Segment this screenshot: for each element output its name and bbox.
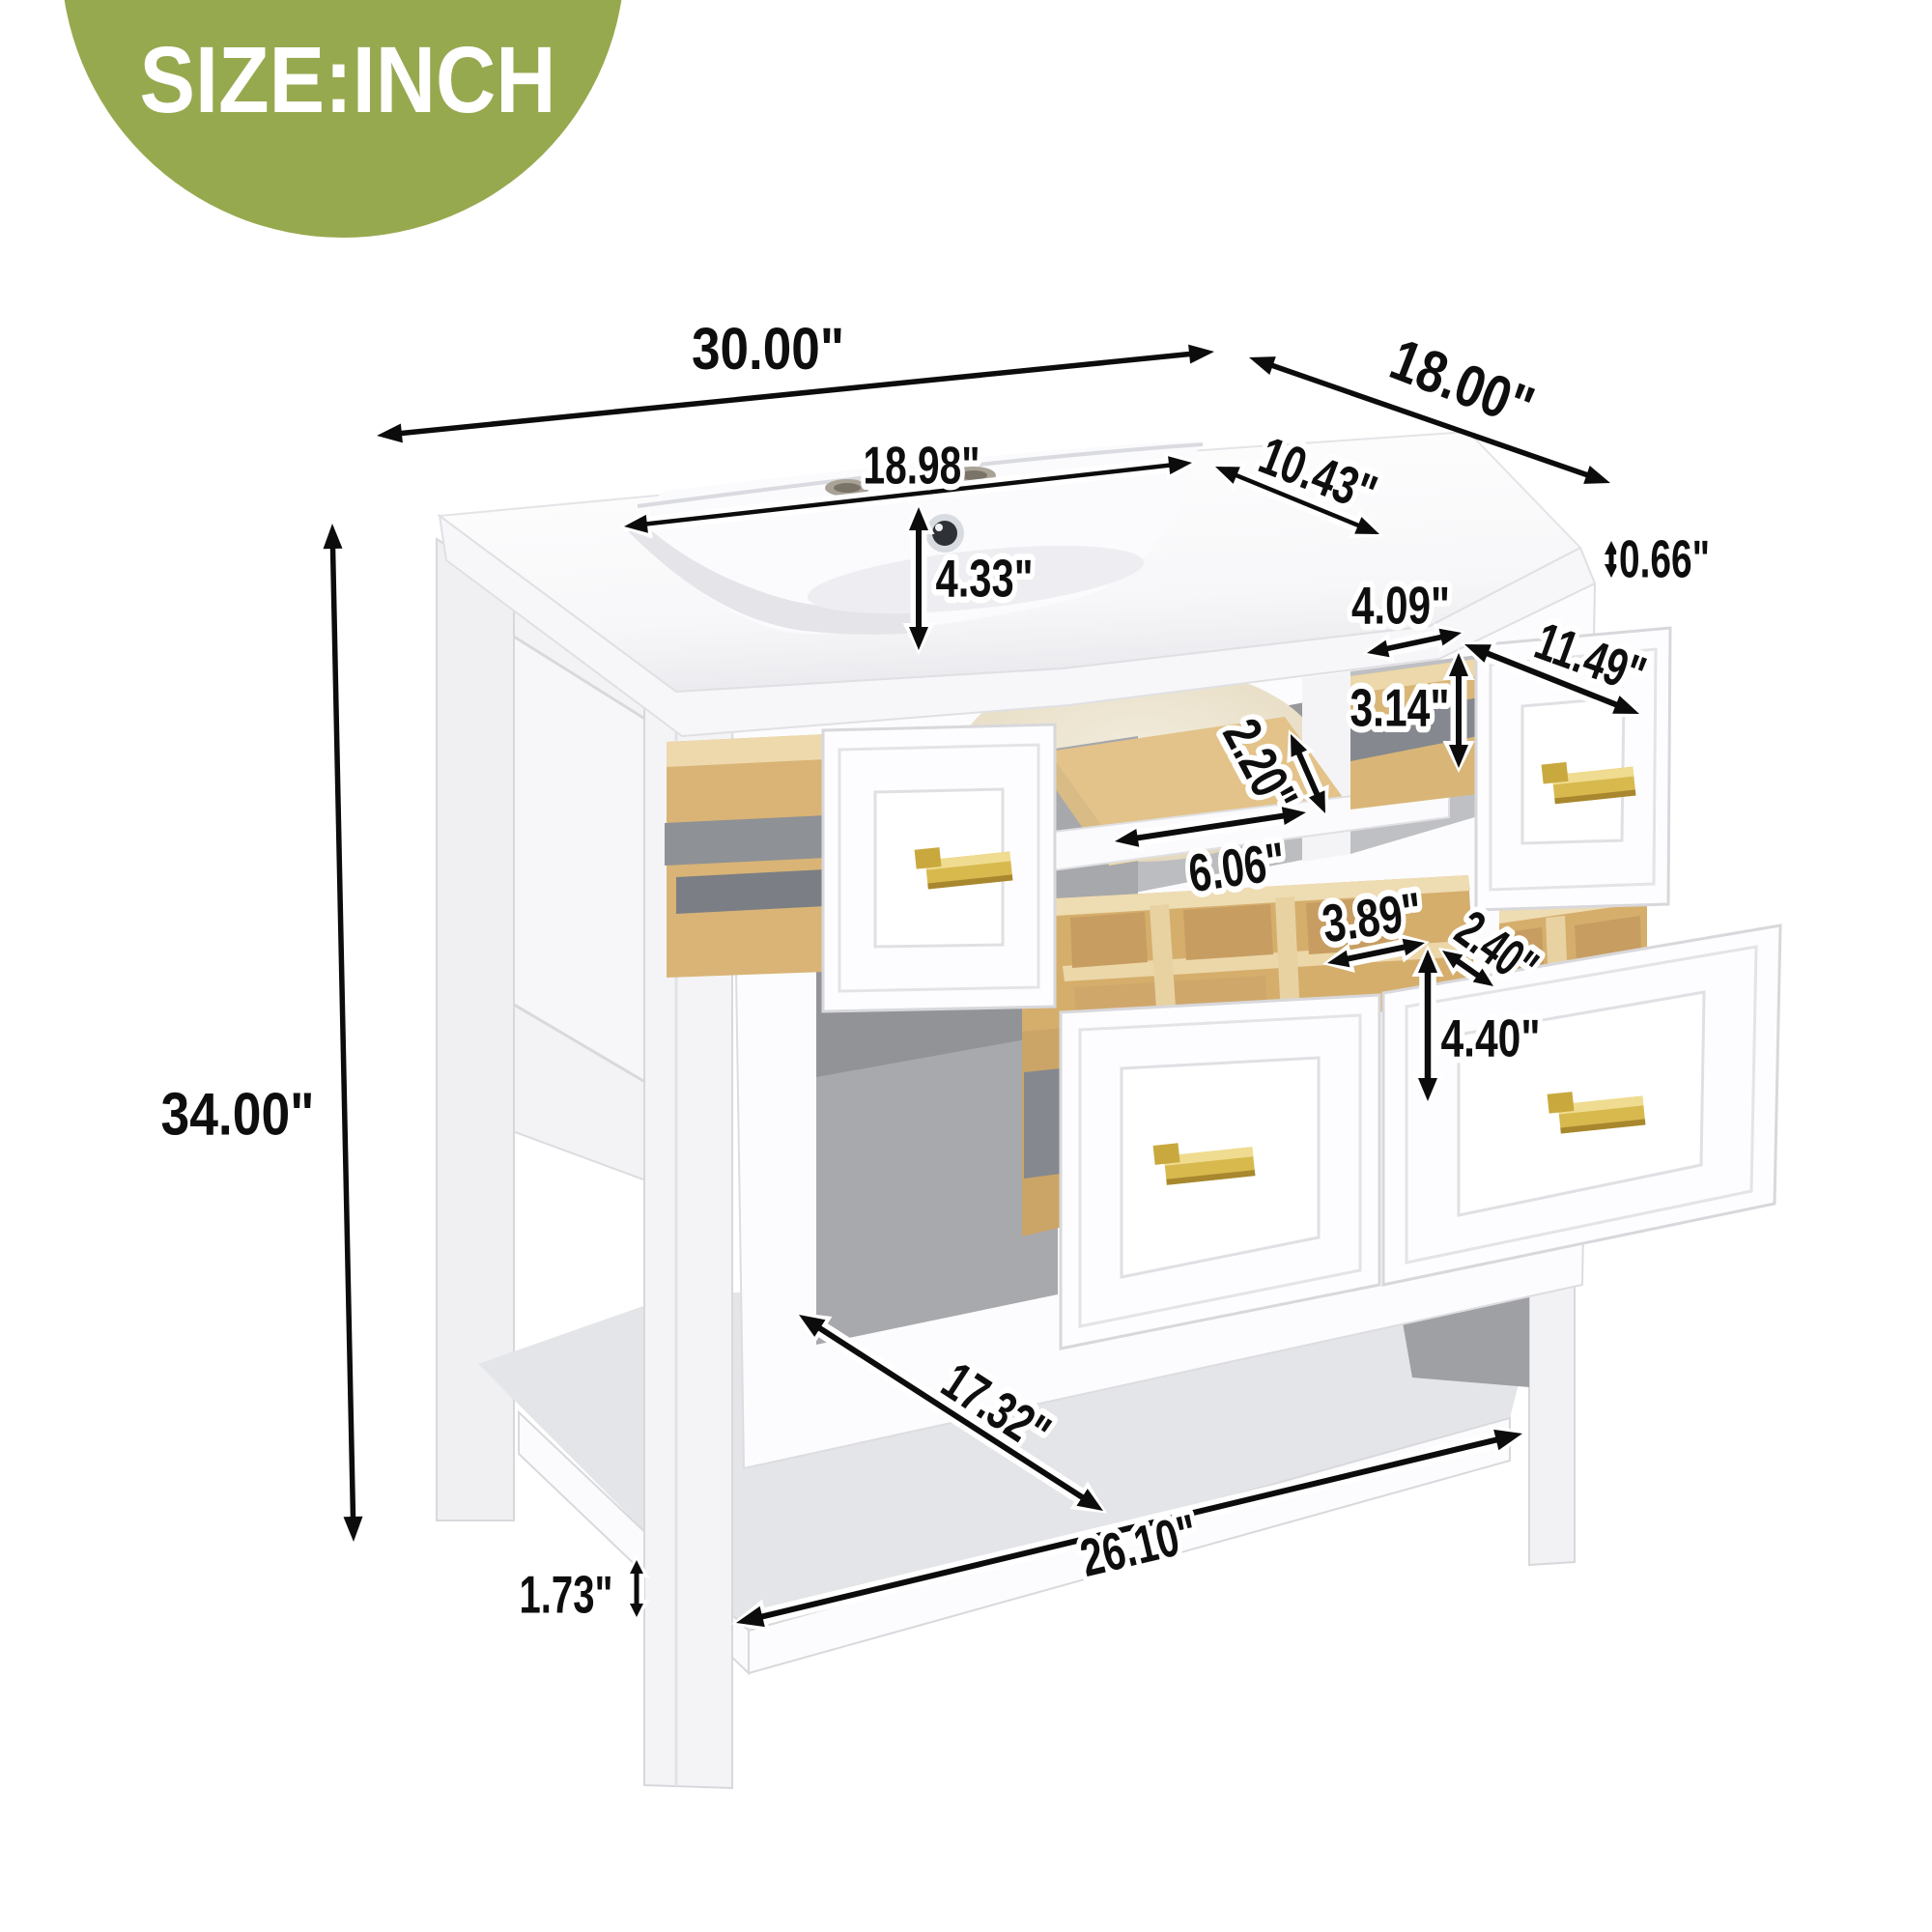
- svg-text:4.40": 4.40": [1441, 1009, 1541, 1068]
- svg-text:SIZE:INCH: SIZE:INCH: [140, 27, 556, 132]
- svg-text:30.00": 30.00": [692, 316, 844, 382]
- svg-text:1.73": 1.73": [520, 1565, 613, 1625]
- svg-text:3.14": 3.14": [1350, 678, 1450, 738]
- svg-text:34.00": 34.00": [161, 1081, 315, 1148]
- svg-text:4.33": 4.33": [936, 549, 1034, 609]
- svg-text:18.98": 18.98": [864, 436, 980, 496]
- svg-text:4.09": 4.09": [1351, 576, 1450, 636]
- svg-text:0.66": 0.66": [1619, 529, 1710, 589]
